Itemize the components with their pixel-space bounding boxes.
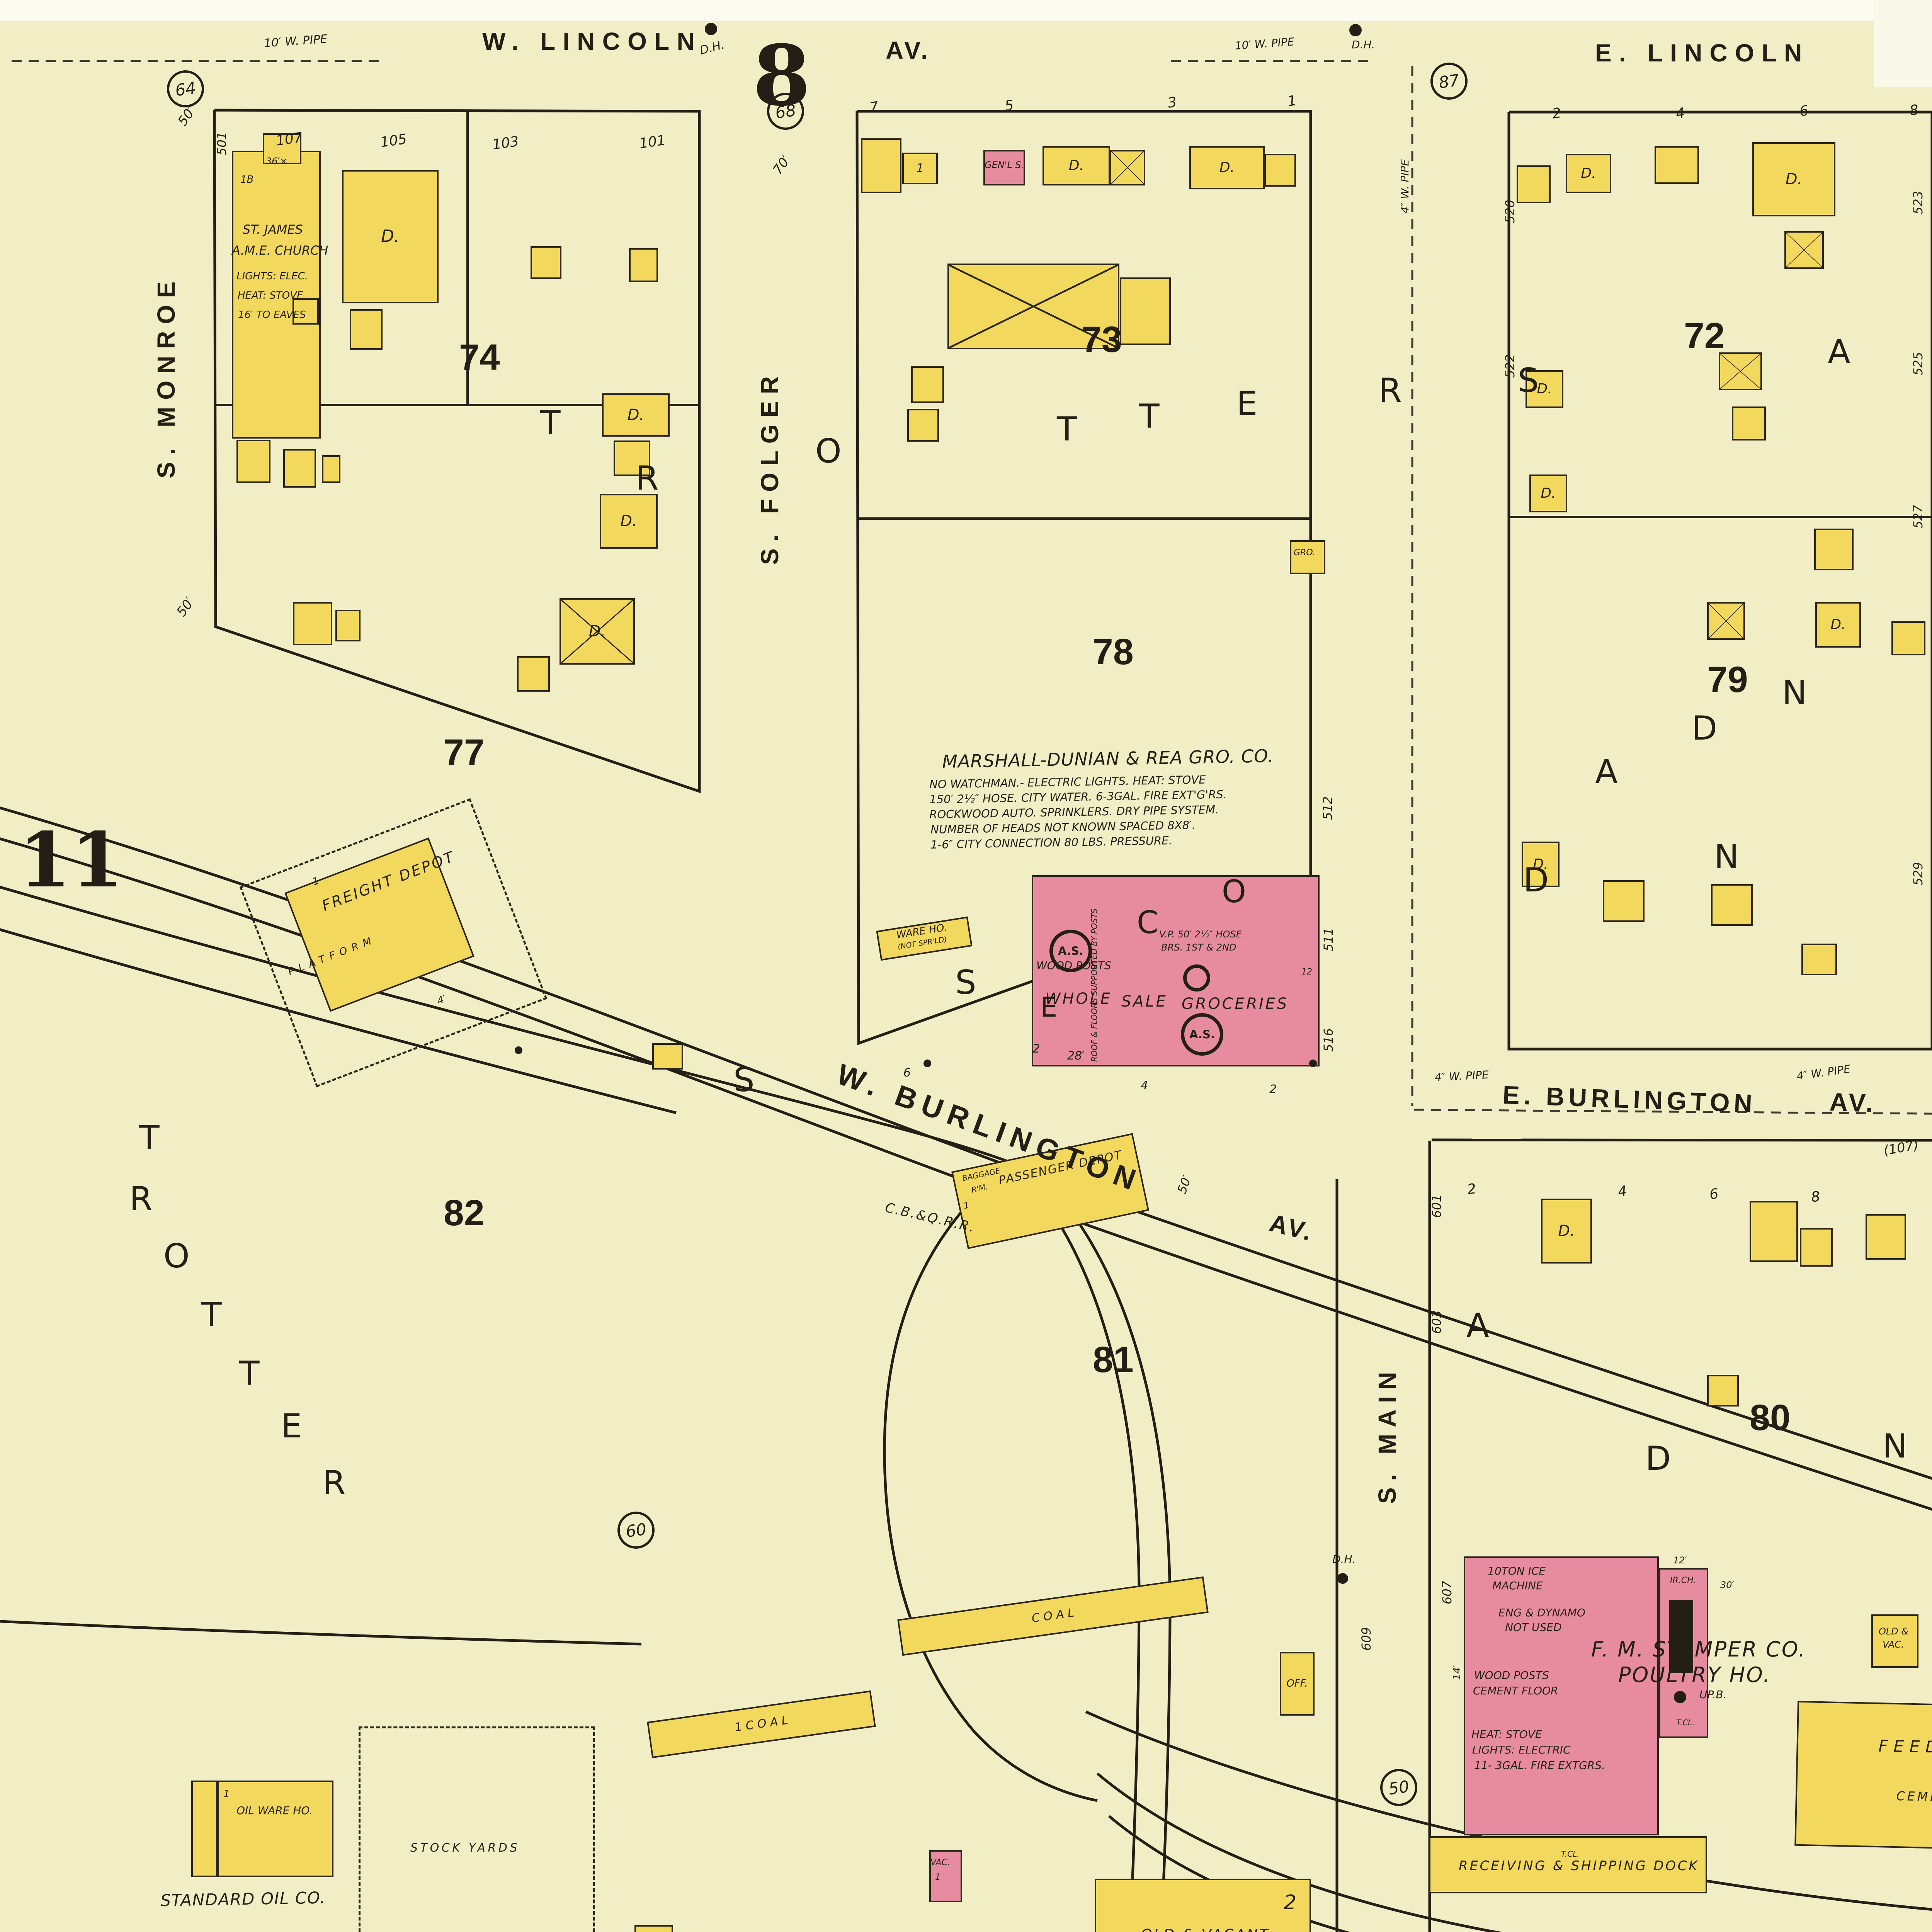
map-annotation: FEEDING STATION: [1878, 1738, 1932, 1758]
frame-building: C O A L: [897, 1577, 1208, 1656]
street-letter: T: [201, 1298, 222, 1332]
street-letter: R: [129, 1182, 153, 1216]
map-annotation: 4: [1675, 106, 1686, 121]
tank-circle: [1183, 964, 1210, 992]
building-label: D.: [1558, 1222, 1575, 1240]
frame-building: [218, 1781, 333, 1877]
street-letter: T: [139, 1121, 160, 1155]
frame-building: 1: [902, 153, 938, 184]
building-label: D.: [1069, 158, 1084, 173]
map-annotation: NOT USED: [1505, 1622, 1562, 1633]
map-annotation: GROCERIES: [1182, 996, 1289, 1012]
frame-building: [1891, 621, 1925, 655]
map-annotation: A.M.E. CHURCH: [232, 244, 328, 257]
dwelling-building: D.: [560, 598, 635, 665]
map-annotation: 7: [869, 100, 879, 115]
street-letter: C: [1137, 907, 1158, 938]
railroad-track: [1012, 1163, 1139, 1932]
street-label: W. LINCOLN: [482, 29, 702, 54]
auto-sprinkler-symbol: A.S.: [1049, 930, 1092, 972]
street-letter: A: [1466, 1309, 1489, 1342]
frame-building: [1707, 602, 1745, 640]
hydrant-dot: [1337, 1573, 1348, 1584]
map-annotation: 101: [638, 133, 667, 151]
map-annotation: BRS. 1ST & 2ND: [1161, 943, 1236, 952]
street-letter: R: [1379, 374, 1402, 407]
map-annotation: OLD & VACANT: [1141, 1927, 1269, 1932]
street-label: E. LINCOLN: [1595, 41, 1810, 65]
map-annotation: 609: [1360, 1627, 1372, 1651]
dwelling-building: D.: [1529, 474, 1567, 512]
building-label: D.: [1219, 160, 1235, 175]
map-annotation: T.CL.: [1561, 1850, 1580, 1858]
street-letter: T: [239, 1357, 260, 1390]
map-annotation: 12: [1301, 968, 1312, 976]
map-annotation: 8: [1909, 103, 1920, 118]
map-annotation: 1-6″ CITY CONNECTION 80 LBS. PRESSURE.: [930, 835, 1172, 850]
building-label: D.: [1830, 617, 1845, 633]
frame-building: [1814, 529, 1854, 570]
map-annotation: 607: [1441, 1581, 1453, 1604]
map-annotation: HEAT: STOVE: [1471, 1729, 1542, 1740]
street-letter: O: [1222, 876, 1246, 907]
frame-building: [1800, 1228, 1833, 1267]
map-annotation: MACHINE: [1492, 1580, 1543, 1591]
hydrant-dot: [705, 23, 717, 35]
map-annotation: CEMENT FLOOR: [1896, 1790, 1932, 1804]
map-annotation: 522: [1504, 354, 1516, 378]
street-letter: E: [281, 1410, 302, 1443]
map-annotation: 50′: [175, 595, 197, 619]
frame-building: [191, 1781, 218, 1877]
frame-building: [1110, 150, 1145, 185]
map-annotation: CEMENT FLOOR: [1473, 1685, 1558, 1696]
map-annotation: 36′×: [266, 156, 287, 166]
map-annotation: 4″ W. PIPE: [1434, 1070, 1489, 1083]
street-letter: E: [1040, 994, 1057, 1021]
frame-building: [283, 449, 316, 488]
hydrant-dot: [1674, 1691, 1686, 1703]
map-annotation: ROOF & FLOORS SUPPORTED BY POSTS: [1090, 908, 1098, 1062]
frame-building: [629, 248, 658, 282]
map-annotation: STOCK YARDS: [410, 1842, 520, 1854]
frame-building: [1095, 1879, 1311, 1932]
map-annotation: 105: [379, 132, 408, 150]
street-label: S. MONROE: [154, 274, 179, 478]
frame-building: [1732, 406, 1766, 440]
map-annotation: OLD &: [1879, 1627, 1908, 1636]
map-annotation: 12′: [1673, 1556, 1687, 1565]
frame-building: [335, 610, 361, 641]
building-label: D.: [620, 512, 637, 530]
dwelling-building: D.: [600, 494, 658, 549]
map-annotation: 2: [1284, 1893, 1296, 1913]
map-annotation: HEAT: STOVE: [238, 291, 303, 301]
street-label: S. FOLGER: [757, 369, 782, 565]
frame-building: [1794, 1701, 1932, 1859]
circled-dimension: 60: [615, 1509, 657, 1551]
street-letter: T: [1139, 400, 1160, 433]
street-letter: N: [1782, 676, 1807, 709]
map-annotation: GEN'L S.: [985, 160, 1024, 170]
map-annotation: 3: [1167, 95, 1178, 111]
map-annotation: 30′: [1720, 1580, 1734, 1590]
building-label: D.: [1581, 165, 1596, 181]
frame-building: [1719, 352, 1762, 390]
frame-building: [907, 409, 939, 442]
block-number: 82: [444, 1195, 485, 1231]
hydrant-dot: [923, 1060, 931, 1067]
map-annotation: T.CL.: [1676, 1719, 1695, 1726]
map-annotation: 511: [1322, 928, 1335, 951]
street-letter: S: [733, 1063, 755, 1097]
frame-building: [1866, 1214, 1906, 1260]
map-annotation: 10′ W. PIPE: [264, 34, 328, 49]
frame-building: [1711, 884, 1753, 926]
map-annotation: VAC.: [930, 1859, 950, 1867]
sheet-number: 11: [19, 822, 123, 898]
street-letter: O: [815, 435, 842, 468]
map-annotation: 14′: [1452, 1665, 1462, 1680]
street-letter: D: [1523, 864, 1549, 897]
frame-building: [652, 1043, 683, 1070]
hydrant-dot: [515, 1046, 522, 1054]
circled-dimension: 64: [165, 68, 206, 110]
map-annotation: 2: [1466, 1182, 1477, 1197]
street-letter: R: [636, 462, 659, 495]
railroad-track: [0, 1621, 641, 1644]
frame-building: [1669, 1600, 1693, 1673]
block-number: 80: [1750, 1400, 1791, 1436]
railroad-track: [1043, 1179, 1170, 1932]
building-label: 1: [916, 162, 923, 175]
map-annotation: 10′ W. PIPE: [1235, 36, 1294, 51]
street-letter: A: [1828, 335, 1850, 369]
dwelling-building: D.: [1566, 154, 1611, 193]
map-annotation: 103: [492, 134, 520, 152]
block-number: 77: [444, 734, 485, 771]
circled-dimension: 50: [1378, 1767, 1420, 1808]
map-annotation: D.H.: [699, 39, 726, 57]
frame-building: [1707, 1375, 1739, 1406]
map-annotation: RECEIVING & SHIPPING DOCK: [1459, 1859, 1699, 1872]
railroad-track: [884, 1163, 1097, 1801]
map-annotation: 1: [223, 1789, 230, 1799]
street-letter: R: [323, 1466, 346, 1500]
block-number: 73: [1081, 321, 1122, 358]
street-letter: T: [540, 406, 561, 440]
map-annotation: 2: [1269, 1084, 1277, 1095]
map-annotation: 1B: [240, 175, 253, 185]
frame-building: [911, 366, 944, 403]
map-annotation: 50′: [1175, 1173, 1193, 1195]
building-label: OFF.: [1286, 1678, 1308, 1690]
street-label: E. BURLINGTON: [1502, 1082, 1757, 1116]
street-label: AV.: [1267, 1210, 1316, 1245]
map-annotation: GRO.: [1294, 549, 1315, 557]
map-annotation: 2: [1551, 106, 1562, 121]
frame-building: [1784, 231, 1824, 269]
street-label: S. MAIN: [1375, 1366, 1400, 1504]
map-annotation: 4: [1141, 1080, 1148, 1092]
map-annotation: ROCKWOOD AUTO. SPRINKLERS. DRY PIPE SYST…: [929, 804, 1219, 820]
building-label: D.: [1537, 381, 1552, 397]
frame-building: [1264, 154, 1296, 187]
dwelling-building: D.: [342, 170, 439, 303]
block-number: 81: [1093, 1342, 1134, 1378]
dwelling-building: D.: [1815, 602, 1861, 648]
frame-building: [1801, 944, 1837, 975]
street-letter: S: [955, 966, 976, 999]
map-annotation: STANDARD OIL CO.: [160, 1890, 326, 1909]
map-annotation: 6: [903, 1067, 911, 1079]
street-letter: E: [1236, 387, 1257, 420]
map-annotation: 601: [1430, 1194, 1443, 1218]
street-letter: S: [1518, 364, 1539, 397]
map-annotation: ENG & DYNAMO: [1498, 1607, 1585, 1618]
map-annotation: F. M. STAMPER CO.: [1591, 1639, 1806, 1660]
map-annotation: D.H.: [1332, 1554, 1355, 1565]
frame-building: [531, 246, 561, 279]
street-letter: T: [1057, 413, 1077, 446]
map-annotation: 50′: [176, 104, 198, 128]
frame-building: [1655, 146, 1699, 184]
map-annotation: WOOD POSTS: [1474, 1670, 1549, 1681]
building-label: D.: [381, 227, 400, 247]
map-annotation: 6: [1709, 1187, 1719, 1202]
block-number: 78: [1093, 634, 1134, 670]
paper-edge-top: [0, 0, 1932, 21]
hydrant-dot: [1349, 24, 1362, 36]
dwelling-building: D.: [1043, 146, 1110, 185]
map-annotation: 150′ 2½″ HOSE. CITY WATER. 6-3GAL. FIRE …: [929, 789, 1227, 805]
map-annotation: VAC.: [1883, 1640, 1904, 1649]
map-annotation: 4″ W. PIPE: [1400, 159, 1410, 213]
map-annotation: 527: [1912, 505, 1924, 529]
frame-building: OFF.: [1280, 1652, 1315, 1716]
frame-building: [1750, 1201, 1798, 1262]
street-letter: N: [1883, 1430, 1907, 1463]
map-annotation: IR.CH.: [1670, 1577, 1696, 1585]
building-label: C O A L: [1031, 1607, 1075, 1626]
frame-building: [1120, 277, 1171, 345]
map-annotation: 1: [935, 1873, 940, 1882]
frame-building: [322, 455, 340, 483]
building-label: D.: [1786, 170, 1803, 188]
map-annotation: 107: [275, 131, 303, 148]
map-annotation: 11- 3GAL. FIRE EXTGRS.: [1474, 1760, 1605, 1771]
street-letter: A: [1595, 755, 1618, 789]
map-annotation: D.H.: [1352, 39, 1375, 50]
map-annotation: 525: [1912, 352, 1924, 376]
block-number: 72: [1684, 318, 1725, 354]
dwelling-building: D.: [602, 393, 670, 437]
frame-building: [1517, 165, 1551, 203]
street-label: AV.: [886, 38, 930, 63]
building-label: D.: [628, 406, 645, 424]
block-number: 74: [459, 339, 500, 376]
map-annotation: NO WATCHMAN.- ELECTRIC LIGHTS. HEAT: STO…: [929, 774, 1206, 790]
frame-building: [517, 656, 550, 692]
map-annotation: LIGHTS: ELEC.: [236, 271, 308, 281]
map-annotation: 2: [1032, 1043, 1040, 1055]
frame-building: [350, 309, 383, 350]
map-annotation: LIGHTS: ELECTRIC: [1472, 1745, 1571, 1755]
map-annotation: 5: [1004, 99, 1015, 114]
building-label: D.: [1541, 485, 1556, 501]
circled-dimension: 87: [1428, 60, 1470, 102]
dashed-outline: [240, 798, 548, 1087]
frame-building: 1 C O A L: [647, 1690, 876, 1758]
map-annotation: 8: [1810, 1190, 1821, 1205]
dashed-outline: [359, 1726, 595, 1932]
street-letter: D: [1692, 712, 1717, 745]
map-annotation: 4″ W. PIPE: [1796, 1064, 1851, 1082]
dwelling-building: D.: [1189, 146, 1265, 189]
hydrant-dot: [1309, 1060, 1317, 1067]
street-letter: O: [163, 1240, 190, 1273]
map-annotation: UP.B.: [1699, 1689, 1727, 1700]
map-annotation: 603: [1430, 1310, 1443, 1334]
sanborn-map-page: D.D.D.D.1D.D.D.D.D.D.D.D.D.D.D.D.D.D.OFF…: [0, 0, 1932, 1932]
map-annotation: 16′ TO EAVES: [238, 310, 306, 320]
street-label: AV.: [1829, 1089, 1876, 1116]
map-annotation: 512: [1321, 796, 1334, 820]
map-annotation: V.P. 50′ 2½″ HOSE: [1159, 930, 1242, 939]
map-annotation: (107): [1883, 1138, 1920, 1157]
frame-building: [1603, 880, 1645, 922]
dwelling-building: D.: [634, 1925, 673, 1932]
building-label: 1 C O A L: [734, 1714, 789, 1735]
block-number: 79: [1707, 662, 1748, 698]
map-annotation: 4: [1617, 1184, 1628, 1199]
map-annotation: MARSHALL-DUNIAN & REA GRO. CO.: [942, 747, 1274, 770]
map-annotation: 6: [1799, 104, 1810, 119]
map-annotation: 1: [1287, 94, 1298, 109]
map-annotation: 28′: [1067, 1050, 1085, 1062]
frame-building: [236, 440, 270, 483]
frame-building: [861, 138, 901, 193]
map-annotation: 520: [1504, 200, 1516, 223]
street-letter: N: [1714, 840, 1739, 874]
map-annotation: OIL WARE HO.: [236, 1805, 313, 1816]
street-block-line: [1432, 1140, 1932, 1141]
frame-building: [293, 602, 332, 645]
building-label: D.: [589, 622, 606, 640]
street-letter: D: [1645, 1442, 1671, 1475]
paper-edge-top-right: [1874, 0, 1932, 87]
map-annotation: ST. JAMES: [243, 223, 303, 236]
map-annotation: 70′: [771, 153, 793, 177]
map-annotation: NUMBER OF HEADS NOT KNOWN SPACED 8X8′.: [930, 820, 1196, 835]
auto-sprinkler-symbol: A.S.: [1181, 1013, 1223, 1056]
map-annotation: 10TON ICE: [1488, 1566, 1546, 1577]
map-annotation: 501: [216, 132, 228, 155]
dwelling-building: D.: [1541, 1199, 1592, 1264]
map-annotation: 523: [1912, 191, 1924, 214]
map-annotation: 516: [1322, 1028, 1335, 1052]
map-annotation: SALE: [1121, 994, 1168, 1009]
map-annotation: POULTRY HO.: [1618, 1665, 1771, 1685]
map-annotation: 529: [1912, 862, 1924, 886]
dwelling-building: D.: [1752, 142, 1835, 216]
